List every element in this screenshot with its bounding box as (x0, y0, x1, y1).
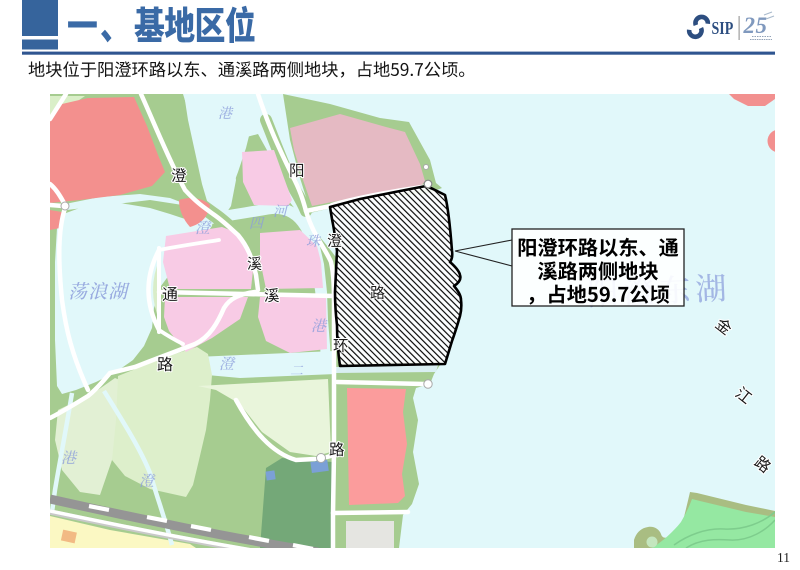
svg-text:11: 11 (777, 550, 790, 565)
svg-text:25: 25 (743, 13, 768, 38)
svg-text:SIP: SIP (712, 19, 734, 38)
